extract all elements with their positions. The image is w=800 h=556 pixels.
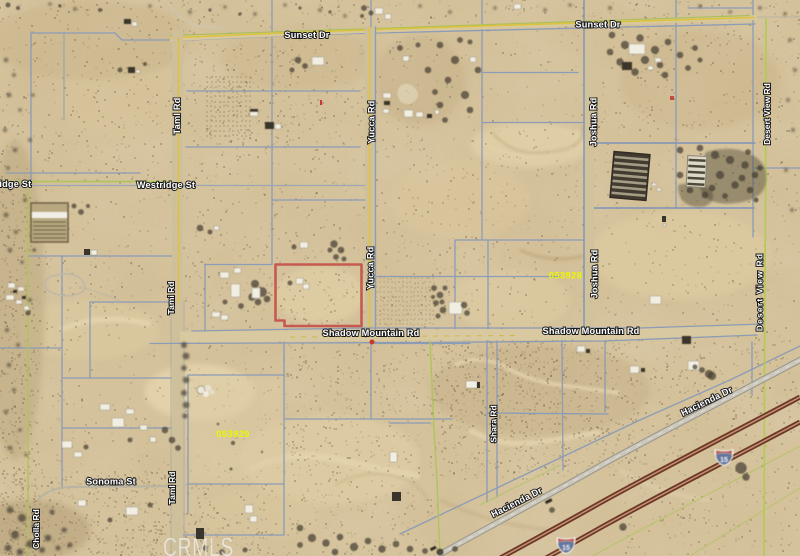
svg-text:Taml Rd: Taml Rd: [172, 98, 182, 135]
svg-text:Shara Rd: Shara Rd: [489, 405, 499, 442]
svg-text:Taml Rd: Taml Rd: [167, 472, 177, 505]
svg-text:Desert View Rd: Desert View Rd: [755, 253, 765, 332]
svg-text:Westridge St: Westridge St: [0, 179, 31, 189]
svg-text:Cholla Rd: Cholla Rd: [31, 509, 41, 549]
svg-text:Sunset Dr: Sunset Dr: [284, 30, 329, 40]
svg-text:15: 15: [562, 545, 570, 552]
svg-text:Desert View Rd: Desert View Rd: [762, 83, 772, 145]
svg-text:Sonoma St: Sonoma St: [86, 477, 136, 487]
svg-text:Yucca Rd: Yucca Rd: [366, 247, 376, 290]
svg-text:Shadow Mountain Rd: Shadow Mountain Rd: [323, 328, 420, 338]
svg-text:Joshua Rd: Joshua Rd: [589, 98, 599, 147]
svg-text:053928: 053928: [549, 271, 583, 282]
svg-text:15: 15: [720, 457, 728, 464]
svg-text:Westridge St: Westridge St: [137, 180, 195, 190]
svg-text:Yucca Rd: Yucca Rd: [367, 101, 377, 144]
svg-text:Joshua Rd: Joshua Rd: [590, 250, 600, 299]
svg-text:053929: 053929: [216, 429, 250, 440]
svg-text:Shadow Mountain Rd: Shadow Mountain Rd: [543, 326, 640, 336]
svg-text:Tami Rd: Tami Rd: [166, 282, 176, 315]
svg-text:Sunset Dr: Sunset Dr: [575, 20, 620, 30]
svg-text:CRMLS: CRMLS: [163, 532, 234, 556]
